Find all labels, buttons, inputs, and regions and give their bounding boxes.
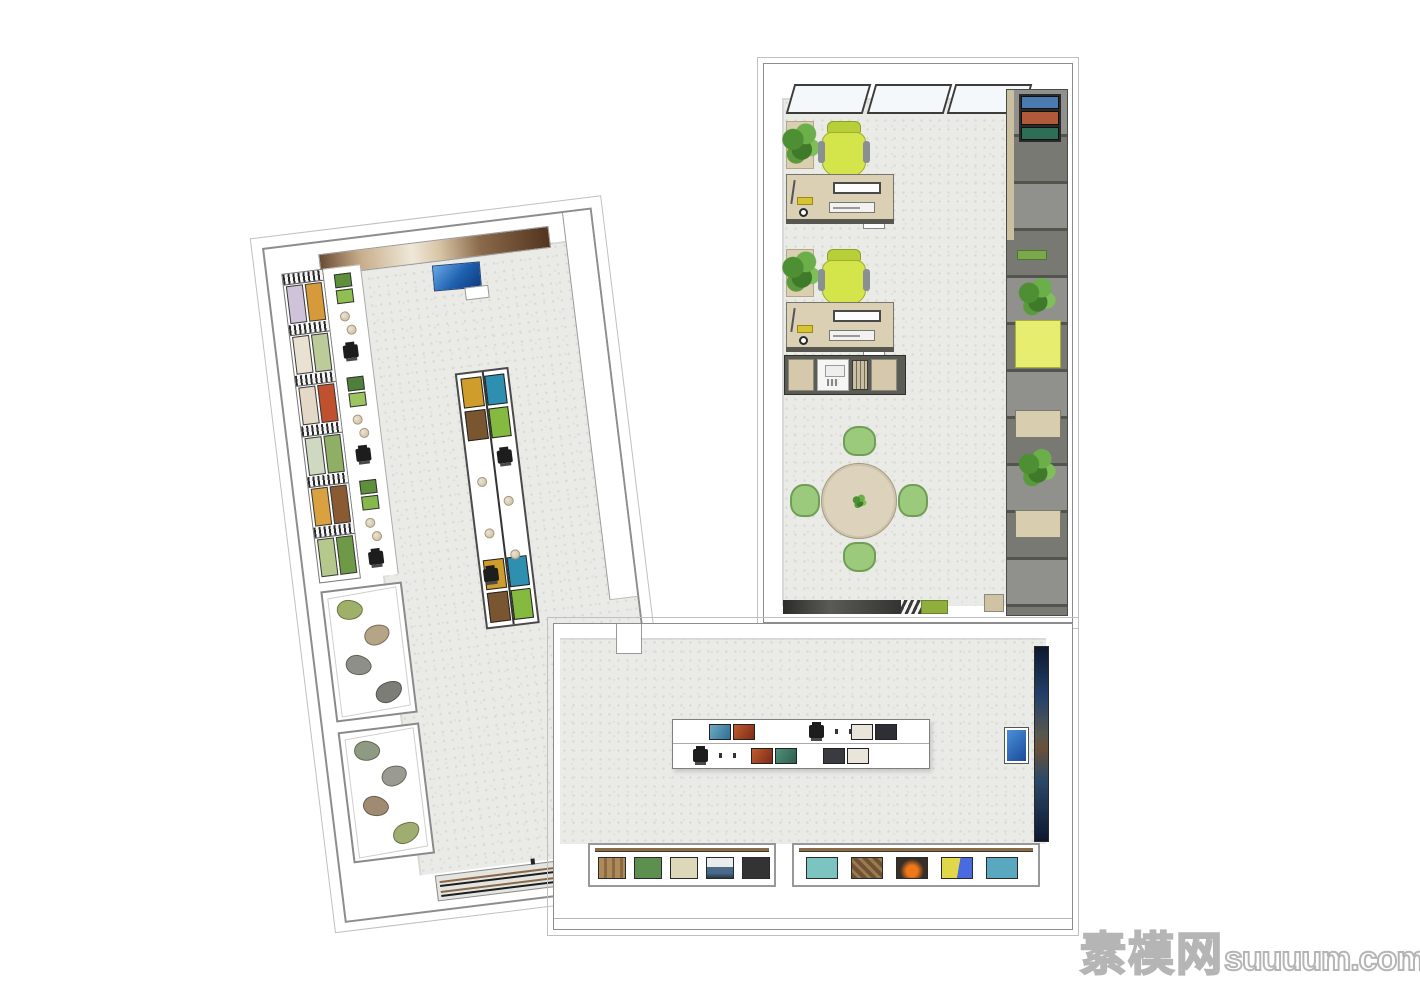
wall-display-segment bbox=[301, 422, 347, 477]
display-picture bbox=[751, 748, 773, 764]
display-picture bbox=[847, 748, 869, 764]
specimen-viewer-device bbox=[693, 749, 708, 762]
artwork-panel bbox=[941, 857, 973, 879]
display-picture bbox=[733, 724, 755, 740]
mineral-specimen bbox=[379, 762, 410, 789]
pit-rail bbox=[799, 848, 1033, 852]
shelf-green-item bbox=[1017, 250, 1047, 260]
chair-armrest bbox=[863, 141, 870, 163]
mineral-specimen bbox=[343, 652, 374, 679]
tall-blue-artwork bbox=[1034, 646, 1049, 842]
mineral-specimen bbox=[361, 793, 392, 820]
display-picture bbox=[775, 748, 797, 764]
art-panel-pair bbox=[290, 331, 335, 376]
shelf-plant bbox=[1017, 276, 1057, 318]
shelf-yellow-box bbox=[1015, 320, 1061, 368]
desk-mouse bbox=[799, 208, 808, 217]
display-picture bbox=[823, 748, 845, 764]
meeting-chair bbox=[843, 426, 876, 456]
artwork-panel bbox=[806, 857, 838, 879]
display-pit bbox=[588, 843, 776, 887]
desk-pen bbox=[790, 180, 795, 204]
office-desk bbox=[786, 174, 894, 220]
office-desk bbox=[786, 302, 894, 348]
specimen-viewer-device bbox=[809, 725, 824, 738]
island-top-panels bbox=[460, 373, 511, 441]
artwork-panel bbox=[706, 857, 734, 879]
art-panel-pair bbox=[315, 534, 360, 579]
desk-mouse bbox=[799, 336, 808, 345]
desk-notepad bbox=[797, 325, 813, 333]
potted-plant bbox=[781, 249, 821, 295]
outer-wall-line bbox=[554, 918, 1072, 919]
desk-keyboard bbox=[829, 202, 875, 213]
art-panel-pair bbox=[309, 483, 354, 528]
shelf-wood-box bbox=[1015, 410, 1061, 438]
specimen-stone bbox=[503, 495, 514, 506]
small-art-card bbox=[348, 391, 367, 407]
wall-mounted-screen bbox=[1004, 727, 1029, 764]
specimen-stone bbox=[365, 517, 376, 528]
pit-rail bbox=[595, 848, 769, 852]
display-pit bbox=[792, 843, 1040, 887]
office-chair bbox=[818, 249, 870, 307]
art-panel bbox=[286, 284, 308, 324]
art-panel bbox=[323, 434, 345, 474]
art-panel bbox=[305, 436, 327, 476]
display-picture bbox=[851, 724, 873, 740]
specimen-stone bbox=[359, 427, 370, 438]
wall-pier bbox=[616, 624, 642, 654]
small-art-card bbox=[359, 479, 378, 495]
wall-peg bbox=[849, 729, 852, 734]
art-panel bbox=[305, 282, 327, 322]
artwork-panel bbox=[598, 857, 626, 879]
artwork-panel bbox=[670, 857, 698, 879]
potted-plant bbox=[781, 121, 821, 167]
specimen-stone bbox=[484, 528, 495, 539]
window-pane bbox=[786, 84, 871, 114]
display-wall-front-face bbox=[673, 744, 929, 768]
mineral-specimen bbox=[389, 818, 423, 848]
art-panel-pair bbox=[296, 382, 341, 427]
island-art-panel bbox=[510, 588, 534, 620]
door-frame bbox=[984, 594, 1004, 612]
specimen-viewer-device bbox=[368, 551, 384, 566]
island-art-panel bbox=[506, 555, 530, 587]
sideboard-appliance bbox=[817, 359, 849, 391]
watermark-cn: 素模网 bbox=[1080, 918, 1224, 984]
desk-keyboard bbox=[829, 330, 875, 341]
artwork-panel bbox=[634, 857, 662, 879]
island-art-panel bbox=[460, 376, 484, 408]
specimen-viewer-device bbox=[355, 447, 371, 462]
magazine bbox=[1021, 111, 1059, 124]
small-art-card bbox=[346, 376, 365, 392]
display-picture bbox=[875, 724, 897, 740]
display-wall bbox=[672, 719, 930, 769]
mineral-display-case bbox=[338, 722, 435, 863]
art-panel-pair bbox=[302, 433, 347, 478]
wall-display-segment bbox=[282, 270, 328, 325]
specimen-stone bbox=[371, 531, 382, 542]
entry-mat bbox=[783, 600, 901, 614]
pit-artworks bbox=[794, 855, 1038, 881]
specimen-viewer-device bbox=[496, 449, 512, 464]
art-panel bbox=[298, 386, 320, 426]
magazine bbox=[1021, 127, 1059, 140]
meeting-chair bbox=[898, 484, 928, 517]
island-art-panel bbox=[464, 409, 488, 441]
specimen-stone bbox=[339, 311, 350, 322]
chair-armrest bbox=[818, 141, 825, 163]
art-panel bbox=[317, 383, 339, 423]
art-panel-pair bbox=[284, 281, 329, 326]
glass-curtain-wall bbox=[790, 84, 1028, 114]
art-panel bbox=[330, 484, 352, 524]
island-art-panel bbox=[487, 591, 511, 623]
small-art-card bbox=[334, 272, 353, 288]
floorplan-canvas: 素模网 suuuum.com bbox=[0, 0, 1420, 1000]
artwork-panel bbox=[986, 857, 1018, 879]
specimen-stone bbox=[346, 324, 357, 335]
chair-armrest bbox=[818, 269, 825, 291]
artwork-panel bbox=[742, 857, 770, 879]
wall-display-segment bbox=[295, 371, 341, 426]
art-panel bbox=[317, 537, 339, 577]
artwork-panel bbox=[896, 857, 928, 879]
stripe-mat bbox=[901, 600, 921, 614]
pit-artworks bbox=[590, 855, 774, 881]
window-pane bbox=[866, 84, 951, 114]
shelf-plant bbox=[1017, 447, 1057, 489]
shelf-wood-edge bbox=[1007, 90, 1014, 240]
wall-peg bbox=[719, 753, 722, 758]
wall-peg bbox=[835, 729, 838, 734]
bottom-gallery bbox=[553, 623, 1073, 930]
desk-notepad bbox=[797, 197, 813, 205]
office-chair bbox=[818, 121, 870, 179]
specimen-stone bbox=[477, 476, 488, 487]
island-art-panel bbox=[484, 373, 508, 405]
mineral-specimen bbox=[336, 598, 364, 621]
screen-display bbox=[1007, 730, 1026, 761]
art-panel bbox=[292, 335, 314, 375]
wall-display-segment bbox=[313, 523, 359, 578]
mineral-specimen bbox=[372, 677, 406, 707]
workstation bbox=[784, 119, 944, 249]
art-panel bbox=[311, 487, 333, 527]
shelf-magazines bbox=[1019, 94, 1061, 142]
sideboard-books bbox=[852, 360, 868, 390]
storage-shelf bbox=[1006, 89, 1068, 616]
small-art-card bbox=[361, 495, 380, 511]
art-panel bbox=[311, 333, 333, 373]
mineral-display-case bbox=[320, 581, 417, 722]
sideboard-wood-panel bbox=[871, 359, 897, 391]
watermark: 素模网 suuuum.com bbox=[1080, 918, 1420, 984]
mineral-specimen bbox=[353, 739, 381, 762]
display-picture bbox=[709, 724, 731, 740]
desk-pen bbox=[790, 308, 795, 332]
chair-seat bbox=[822, 132, 866, 176]
office-room bbox=[763, 63, 1073, 623]
table-plant bbox=[852, 494, 867, 509]
meeting-chair bbox=[843, 542, 876, 572]
green-mat bbox=[921, 600, 948, 614]
magazine bbox=[1021, 96, 1059, 109]
art-panel bbox=[336, 535, 358, 575]
shelf-wood-box bbox=[1015, 510, 1061, 538]
mineral-specimen bbox=[362, 622, 393, 649]
island-art-panel bbox=[488, 406, 512, 438]
watermark-en: suuuum.com bbox=[1224, 940, 1420, 979]
desk-side-tray bbox=[863, 221, 885, 229]
desk-monitor bbox=[833, 182, 881, 194]
sideboard-cabinet bbox=[784, 355, 906, 395]
specimen-viewer-device bbox=[343, 344, 359, 359]
specimen-viewer-device bbox=[483, 568, 499, 583]
chair-seat bbox=[822, 260, 866, 304]
wall-display-segment bbox=[307, 472, 353, 527]
chair-armrest bbox=[863, 269, 870, 291]
small-art-card bbox=[336, 288, 355, 304]
desk-monitor bbox=[833, 310, 881, 322]
sideboard-wood-panel bbox=[788, 359, 814, 391]
wall-display-segment bbox=[289, 320, 335, 375]
meeting-chair bbox=[790, 484, 820, 517]
display-wall-back-face bbox=[673, 720, 929, 744]
wall-peg bbox=[733, 753, 736, 758]
artwork-panel bbox=[851, 857, 883, 879]
specimen-stone bbox=[352, 414, 363, 425]
